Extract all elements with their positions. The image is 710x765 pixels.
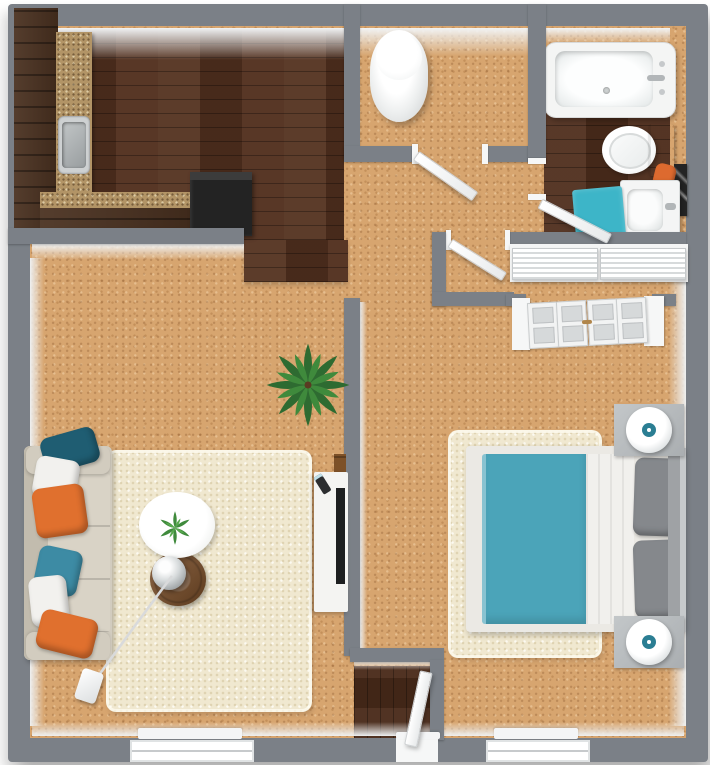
living-room-window-sill: [138, 728, 242, 739]
bathtub-handle-bottom: [659, 89, 665, 95]
lamp-top: [626, 407, 672, 453]
bed-sheet: [586, 454, 634, 624]
bathtub-drain: [603, 87, 610, 94]
floor-plant-palm: [264, 341, 352, 429]
lamp-bottom-finial: [647, 640, 651, 644]
vanity-sink: [627, 189, 663, 231]
louvered-closet: [510, 244, 688, 282]
throw-pillow-orange-top: [31, 483, 89, 540]
wall-utility-south-left: [344, 146, 416, 162]
lamp-top-finial: [647, 428, 651, 432]
vanity: [620, 180, 680, 240]
bed-duvet: [482, 454, 590, 624]
wall-vestibule-south: [432, 292, 514, 306]
lamp-bottom: [626, 619, 672, 665]
water-heater-top: [376, 34, 422, 80]
wall-face-kitchen-top: [58, 28, 344, 60]
wall-face-divider-east: [360, 302, 367, 652]
louvered-door-right: [600, 248, 686, 280]
bathtub-basin: [555, 51, 653, 107]
toilet-seat: [609, 133, 651, 169]
bathtub-handle-top: [659, 61, 665, 67]
bifold-knobs: [582, 320, 592, 325]
table-plant: [156, 509, 194, 547]
water-heater: [370, 30, 428, 122]
bifold-doors: [527, 297, 647, 347]
bifold-door-panel: [616, 297, 648, 345]
bedroom-window-sill: [494, 728, 578, 739]
bathroom-door-jamb-top: [528, 158, 546, 164]
kitchen-sink: [58, 116, 90, 174]
bifold-closet: [512, 294, 664, 352]
bedroom-window: [486, 740, 590, 762]
wall-kitchen-east: [344, 4, 360, 158]
kitchen-floor-extension: [244, 240, 348, 282]
headboard-trim: [680, 448, 686, 632]
bathtub: [544, 42, 676, 118]
refrigerator: [190, 172, 252, 236]
vanity-faucet: [665, 203, 676, 210]
wall-bathroom-west: [528, 4, 546, 162]
living-room-window: [130, 740, 254, 762]
floorplan: [0, 0, 710, 765]
wall-face-kitchen-south: [32, 244, 244, 260]
kitchen-counter-bottom-top: [40, 192, 192, 208]
utility-door-jamb-right: [482, 144, 488, 164]
wall-kitchen-south: [8, 228, 244, 244]
louvered-door-left: [512, 248, 598, 280]
wall-face-bottom: [32, 722, 684, 736]
tv: [336, 488, 345, 584]
wall-entry-east: [430, 660, 444, 740]
bathtub-faucet: [647, 75, 665, 81]
bifold-door-panel: [527, 302, 559, 350]
kitchen-sink-basin: [62, 122, 86, 168]
